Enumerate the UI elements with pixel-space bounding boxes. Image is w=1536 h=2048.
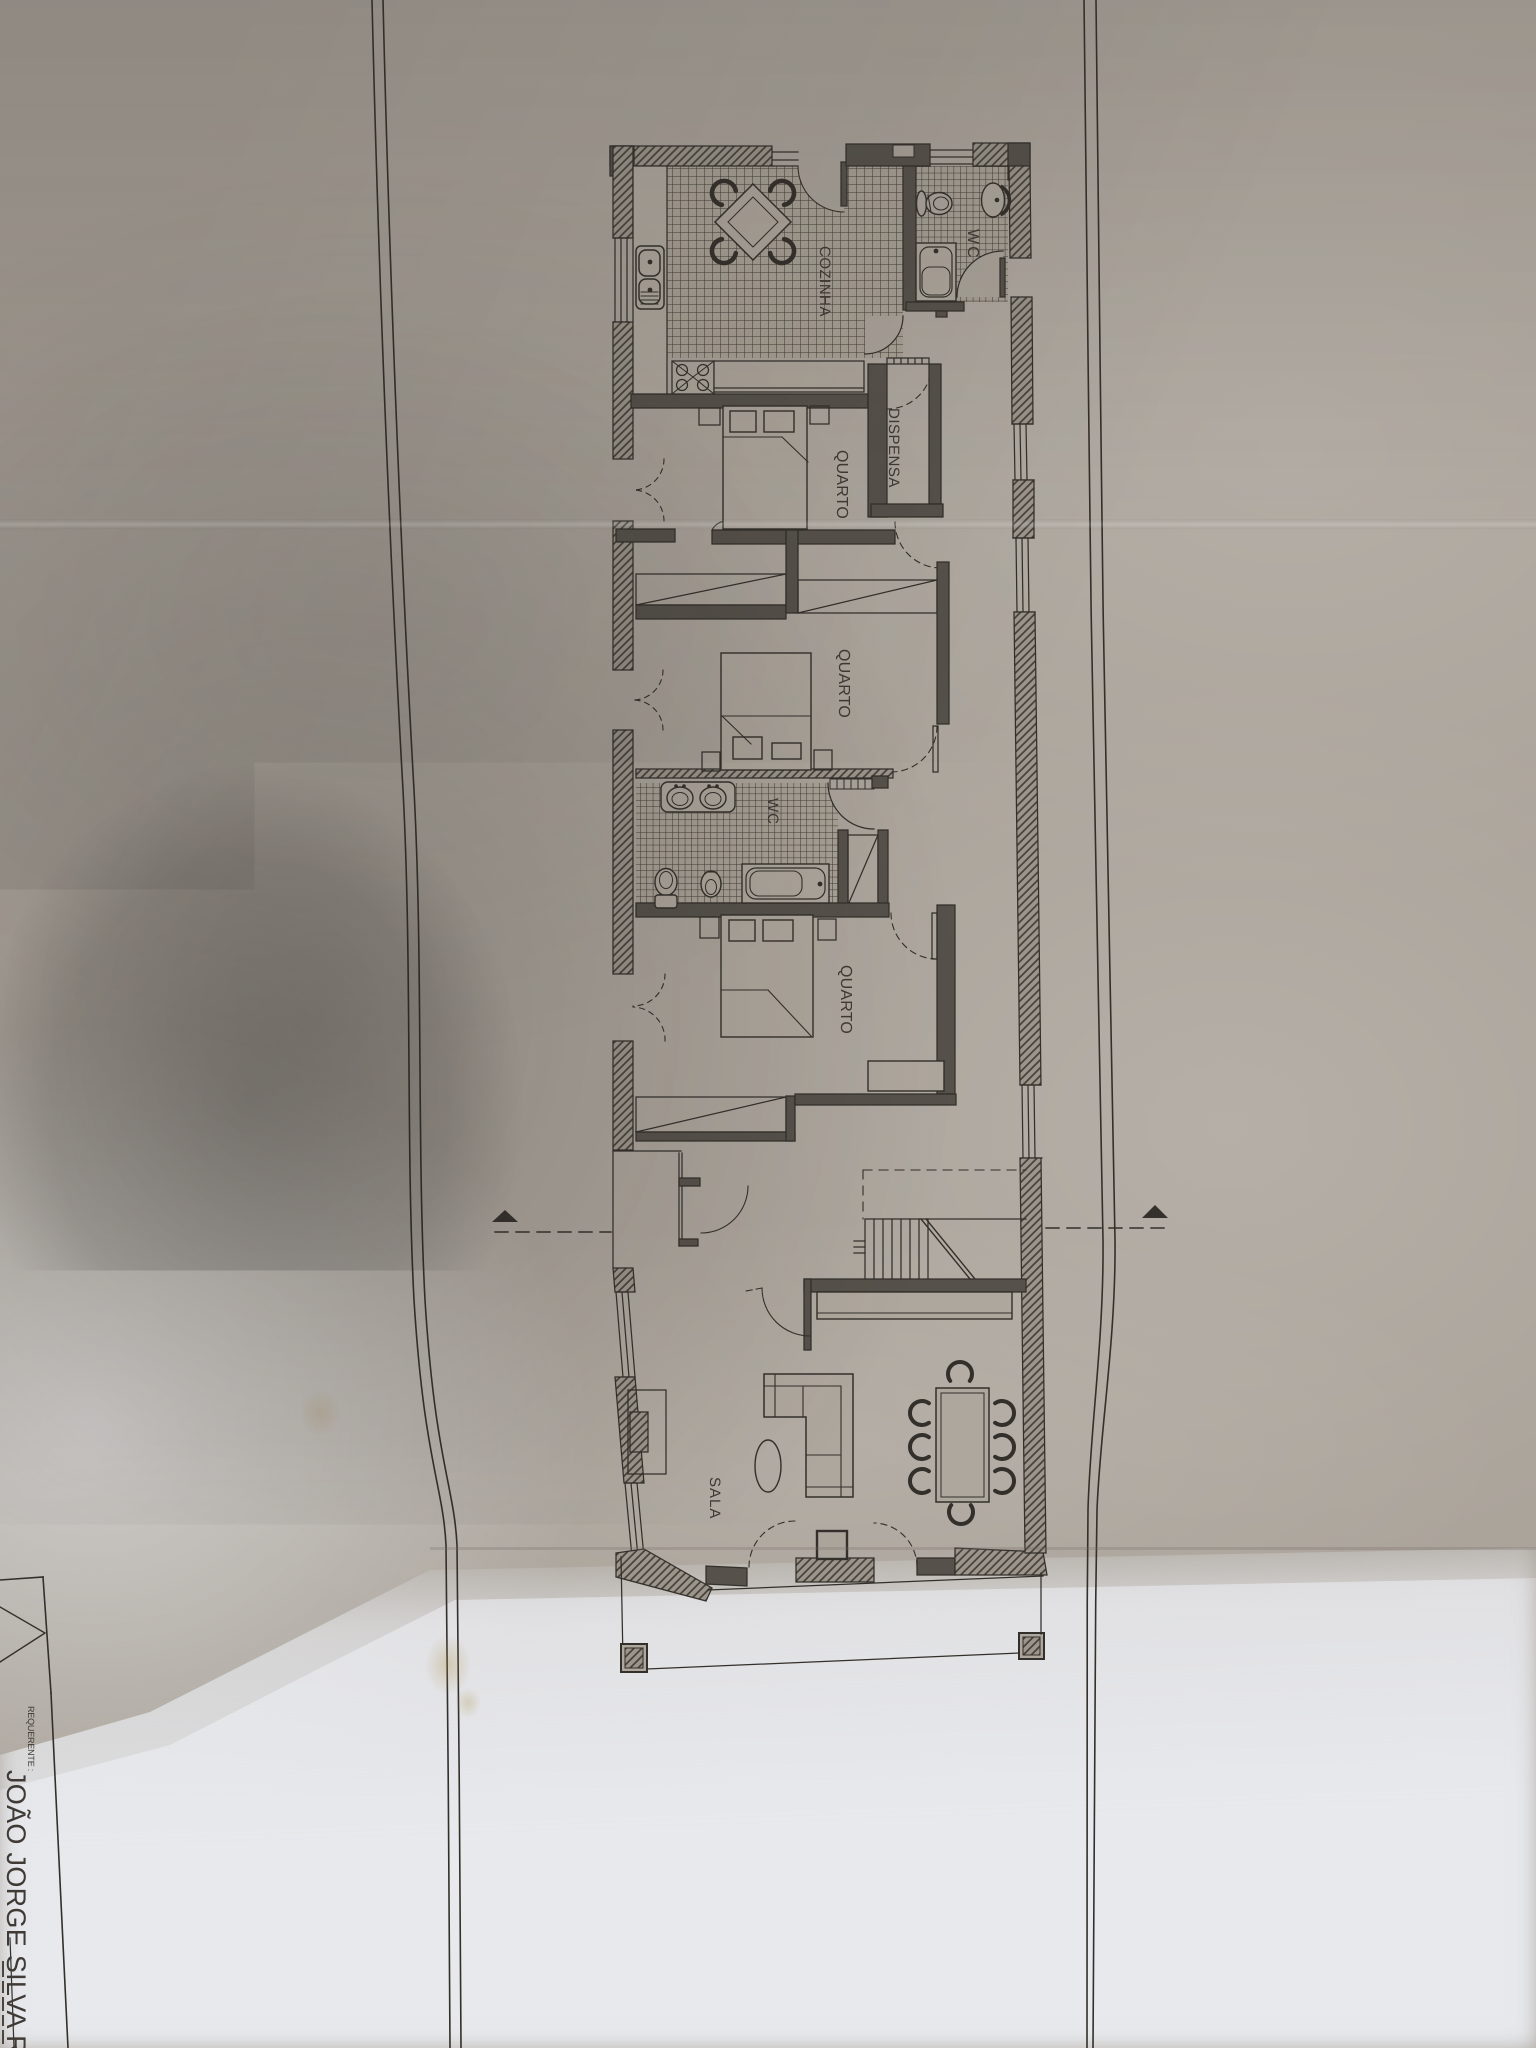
svg-text:SALA: SALA (706, 1477, 723, 1519)
svg-text:WC: WC (764, 798, 781, 825)
svg-text:REQUERENTE :: REQUERENTE : (26, 1706, 36, 1771)
svg-text:WC: WC (964, 229, 981, 260)
svg-text:QUARTO: QUARTO (833, 450, 850, 519)
svg-text:COZINHA: COZINHA (816, 246, 833, 317)
svg-text:DISPENSA: DISPENSA (885, 408, 902, 488)
svg-text:QUARTO: QUARTO (835, 649, 852, 718)
svg-text:QUARTO: QUARTO (837, 965, 854, 1034)
svg-text:JOÃO JORGE SILVA REIS: JOÃO JORGE SILVA REIS (1, 1770, 31, 2048)
